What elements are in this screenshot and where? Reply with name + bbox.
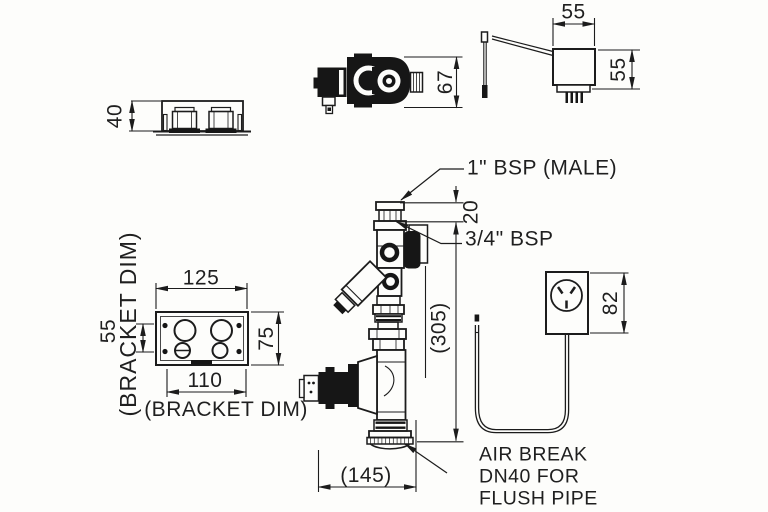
dim-assembly-height: (305): [428, 302, 451, 354]
air-break-line3: FLUSH PIPE: [479, 488, 598, 510]
gpo-outlet-view: 82: [475, 272, 629, 433]
dim-assembly-width: (145): [340, 464, 392, 487]
valve-outlet-thread: [411, 73, 423, 93]
plate-hole-large-right: [211, 320, 232, 341]
bracket-dim-bottom-label: (BRACKET DIM): [144, 398, 308, 421]
solenoid-valve-view: 67: [314, 54, 463, 114]
flush-solenoid-connector: [300, 376, 319, 402]
hex-union: [369, 329, 406, 350]
leader-air-break: [405, 444, 447, 473]
dim-bracket-side-height: 40: [104, 104, 127, 128]
bracket-nut-right: [206, 108, 237, 134]
dim-plate-width-top: 125: [183, 267, 220, 290]
dim-transformer-width: 55: [561, 1, 585, 24]
ribbed-coupling-lower: [374, 420, 407, 431]
drawing-canvas: 40 67: [0, 0, 768, 512]
transformer-box: [553, 49, 595, 85]
bracket-dim-left-label: (BRACKET DIM): [115, 231, 141, 416]
sensor-probe-cap: [482, 32, 488, 42]
union-nut: [373, 305, 404, 314]
plate-slot: [191, 360, 212, 365]
cable-probe-tip: [475, 315, 480, 322]
label-inlet-male: 1" BSP (MALE): [467, 157, 617, 180]
valve-technical-drawing: 40 67: [0, 0, 768, 512]
plate-hole-small-right: [213, 343, 228, 358]
dim-inlet-thread-length: 20: [460, 200, 483, 224]
ribbed-coupling-upper: [375, 314, 402, 322]
plate-outline: [156, 312, 248, 365]
leader-inlet-male: [401, 169, 464, 200]
valve-handle: [404, 231, 421, 269]
inlet-male-cap: [376, 202, 404, 210]
dim-plate-height: 75: [255, 326, 278, 350]
bracket-side-view: 40: [104, 101, 251, 135]
air-break-line2: DN40 FOR: [479, 466, 579, 488]
air-break-line1: AIR BREAK: [479, 444, 588, 466]
dim-plate-width-bottom: 110: [188, 369, 223, 392]
label-outlet-bsp: 3/4" BSP: [465, 228, 554, 251]
solenoid-adapter: [358, 356, 377, 414]
neck-section: [378, 322, 398, 329]
sensor-wire: [492, 36, 553, 56]
outlet-flange: [367, 431, 413, 449]
transformer-pins: [566, 92, 584, 103]
bracket-nut-left: [169, 108, 200, 134]
sensor-cable-inner: [479, 325, 566, 430]
dim-40-extensions: [129, 101, 161, 131]
air-break-note: AIR BREAK DN40 FOR FLUSH PIPE: [479, 444, 598, 510]
sensor-cable-outer: [475, 325, 568, 433]
pipe-section: [377, 296, 400, 305]
inlet-thread: [379, 210, 401, 221]
transformer-view: 55 55: [482, 1, 641, 103]
dim-solenoid-height: 67: [434, 70, 457, 94]
flush-valve-body: [377, 350, 406, 420]
flush-solenoid-coil: [319, 367, 349, 409]
dim-transformer-height: 55: [607, 57, 630, 81]
valve-spindle: [382, 245, 397, 260]
solenoid-connector: [323, 97, 336, 114]
solenoid-coil: [314, 68, 347, 98]
plate-hole-large-left: [175, 320, 196, 341]
bracket-plate-view: 125 55 (BRACKET DIM) 75 110 (BRACKET DIM…: [97, 231, 308, 421]
sensor-probe-tip: [482, 85, 488, 98]
dim-outlet-box-height: 82: [599, 291, 622, 315]
